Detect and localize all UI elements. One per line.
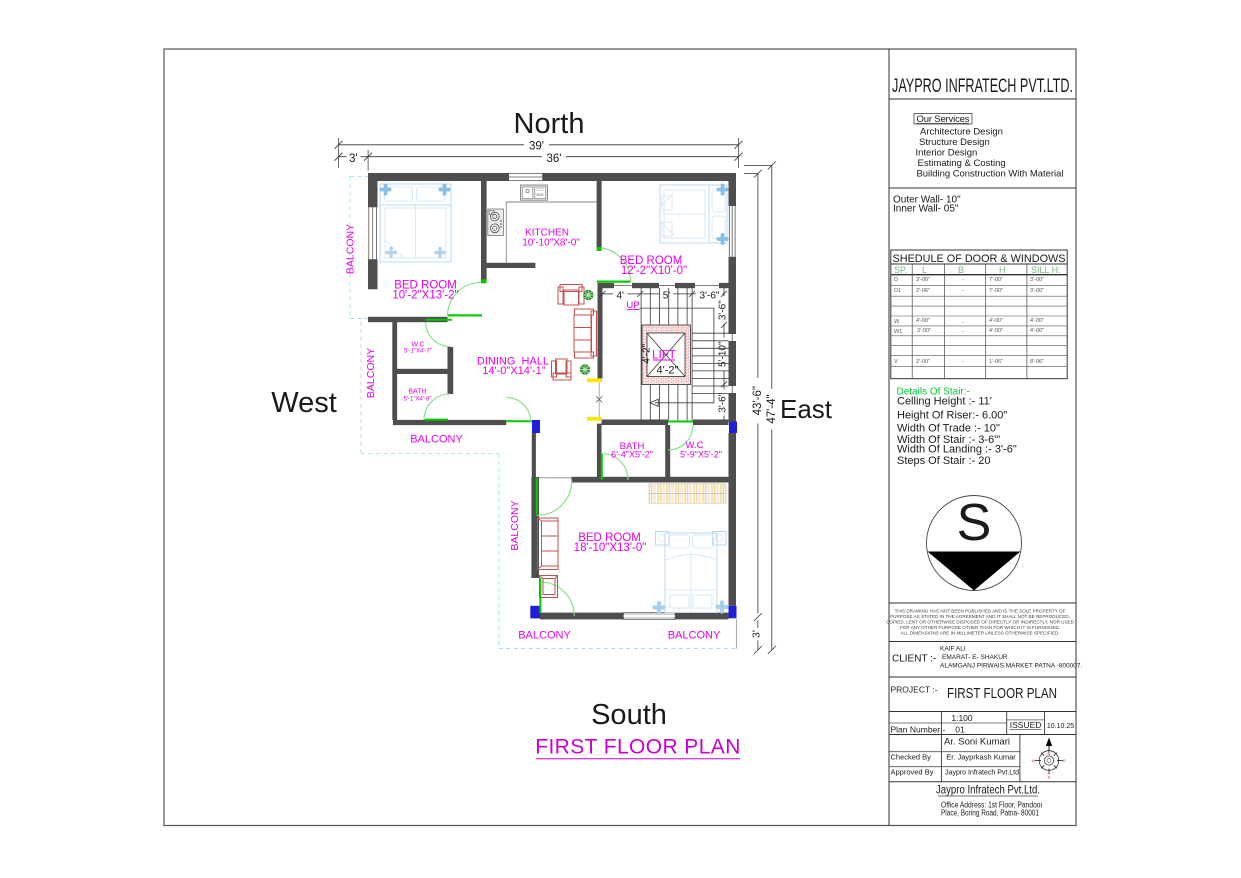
svg-text:5'-9"X5'-2": 5'-9"X5'-2" <box>680 450 722 460</box>
svg-text:ALL DIMENSIONS ARE IN MILLIMET: ALL DIMENSIONS ARE IN MILLIMETER UNLESS … <box>900 631 1059 636</box>
svg-text:5'-1"X4'-8": 5'-1"X4'-8" <box>404 397 432 403</box>
svg-text:D: D <box>894 277 898 283</box>
svg-text:E: E <box>1063 758 1066 763</box>
svg-text:H: H <box>999 265 1006 275</box>
svg-text:1'-06": 1'-06" <box>989 359 1003 365</box>
svg-text:BALCONY: BALCONY <box>345 224 357 274</box>
svg-text:BALCONY: BALCONY <box>509 500 521 550</box>
svg-text:BALCONY: BALCONY <box>518 630 571 642</box>
svg-text:-: - <box>962 288 964 294</box>
svg-text:47'-4": 47'-4" <box>766 394 778 423</box>
svg-text:Approved By: Approved By <box>891 768 934 777</box>
svg-text:W: W <box>1032 758 1036 763</box>
svg-text:5': 5' <box>663 290 671 301</box>
svg-text:North: North <box>514 108 585 140</box>
svg-text:3'-6": 3'-6" <box>718 392 729 412</box>
svg-text:COPIED, LENT OR OTHERWISE DISP: COPIED, LENT OR OTHERWISE DISPOSED OF DI… <box>886 620 1075 625</box>
svg-text:D1: D1 <box>894 288 901 294</box>
svg-text:Plan Number:-: Plan Number:- <box>891 725 946 735</box>
svg-text:BATH: BATH <box>408 389 426 396</box>
svg-text:4'-00": 4'-00" <box>1030 318 1044 324</box>
svg-text:10.10.25: 10.10.25 <box>1047 723 1074 730</box>
svg-text:3': 3' <box>349 153 358 165</box>
svg-text:BALCONY: BALCONY <box>410 434 463 446</box>
svg-text:14'-0"X14'-1": 14'-0"X14'-1" <box>482 365 545 377</box>
svg-text:East: East <box>780 394 833 424</box>
svg-text:12'-2"X10'-0": 12'-2"X10'-0" <box>621 265 687 277</box>
svg-text:West: West <box>271 387 337 419</box>
svg-text:43'-6": 43'-6" <box>752 386 764 415</box>
svg-text:EMARAT- E- SHAKUR: EMARAT- E- SHAKUR <box>942 654 1008 661</box>
svg-text:S: S <box>957 494 992 552</box>
svg-text:PURPOSE AS STATED IN THE AGREE: PURPOSE AS STATED IN THE AGREEMENT AND I… <box>890 614 1070 619</box>
svg-text:FIRST FLOOR PLAN: FIRST FLOOR PLAN <box>947 686 1057 702</box>
svg-text:Er. Jayprkash Kumar: Er. Jayprkash Kumar <box>946 753 1016 762</box>
svg-text:4'-00": 4'-00" <box>916 318 930 324</box>
svg-text:36': 36' <box>547 153 562 165</box>
svg-text:Architecture Design: Architecture Design <box>920 127 1003 138</box>
svg-text:BALCONY: BALCONY <box>365 348 377 398</box>
svg-text:JAYPRO INFRATECH PVT.LTD.: JAYPRO INFRATECH PVT.LTD. <box>892 76 1073 97</box>
svg-text:Place, Boring Road, Patna- 800: Place, Boring Road, Patna- 80001 <box>941 809 1039 818</box>
svg-text:7'-00": 7'-00" <box>989 288 1003 294</box>
svg-text:Structure Design: Structure Design <box>919 137 990 148</box>
svg-text:SP.: SP. <box>894 265 907 275</box>
svg-text:4'-00": 4'-00" <box>989 328 1003 334</box>
svg-text:18'-10"X13'-0": 18'-10"X13'-0" <box>574 542 647 554</box>
svg-text:Inner Wall- 05": Inner Wall- 05" <box>893 204 959 215</box>
svg-text:-: - <box>962 329 964 335</box>
svg-text:Interior Design: Interior Design <box>916 148 978 159</box>
svg-text:THIS DRAWING HAS NOT BEEN PUBL: THIS DRAWING HAS NOT BEEN PUBLISHED AND … <box>895 609 1066 614</box>
svg-text:L: L <box>922 265 927 275</box>
svg-text:Width Of Landing :- 3'-6": Width Of Landing :- 3'-6" <box>897 444 1017 456</box>
svg-text:4': 4' <box>616 290 624 301</box>
svg-text:Ar. Soni Kumari: Ar. Soni Kumari <box>944 737 1010 748</box>
svg-text:Checked By: Checked By <box>891 753 932 762</box>
svg-text:3'-6": 3'-6" <box>718 300 729 320</box>
svg-text:ISSUED: ISSUED <box>1010 720 1042 730</box>
svg-text:2'-00": 2'-00" <box>916 359 930 365</box>
svg-text:4'-00": 4'-00" <box>1030 328 1044 334</box>
svg-text:Building Construction With Mat: Building Construction With Material <box>917 169 1064 180</box>
svg-text:7'-00": 7'-00" <box>989 277 1003 283</box>
svg-text:PROJECT :-: PROJECT :- <box>891 685 938 695</box>
svg-text:5'-10": 5'-10" <box>718 341 729 367</box>
svg-text:4'-2": 4'-2" <box>642 343 653 363</box>
svg-text:Estimating & Costing: Estimating & Costing <box>918 158 1006 169</box>
svg-text:1:100: 1:100 <box>951 713 973 723</box>
svg-text:-: - <box>962 320 964 326</box>
svg-text:SILL H.: SILL H. <box>1031 265 1061 275</box>
svg-text:5'-1"X4'-7": 5'-1"X4'-7" <box>404 349 432 355</box>
svg-text:FIRST FLOOR PLAN: FIRST FLOOR PLAN <box>535 736 741 759</box>
svg-text:B: B <box>958 265 964 275</box>
svg-text:2'-06": 2'-06" <box>916 288 930 294</box>
svg-text:SHEDULE OF DOOR & WINDOWS: SHEDULE OF DOOR & WINDOWS <box>893 253 1066 265</box>
svg-text:S: S <box>1048 775 1051 780</box>
svg-text:Jaypro Infratech Pvt.Ltd.: Jaypro Infratech Pvt.Ltd. <box>936 783 1040 797</box>
svg-text:Height Of Riser:- 6.00": Height Of Riser:- 6.00" <box>897 410 1007 422</box>
svg-text:-: - <box>962 277 964 283</box>
svg-text:Width Of Trade :- 10": Width Of Trade :- 10" <box>897 423 1000 435</box>
svg-text:SINK: SINK <box>536 193 544 197</box>
svg-text:4'-2": 4'-2" <box>657 365 679 377</box>
svg-text:10'-10"X8'-0": 10'-10"X8'-0" <box>522 238 580 249</box>
svg-text:3'-00": 3'-00" <box>1030 288 1044 294</box>
svg-text:W.C: W.C <box>411 342 424 349</box>
svg-text:ALAMGANJ PIRWAIS MARKET PATNA: ALAMGANJ PIRWAIS MARKET PATNA -800007. <box>940 663 1083 670</box>
svg-text:3'-00": 3'-00" <box>917 328 931 334</box>
svg-text:3'-00": 3'-00" <box>916 277 930 283</box>
svg-text:FOR ANY OTHER PURPOSE OTHER TH: FOR ANY OTHER PURPOSE OTHER THAN FOR WHI… <box>900 625 1060 630</box>
svg-text:8'-06": 8'-06" <box>1030 359 1044 365</box>
svg-text:3': 3' <box>750 630 762 638</box>
svg-text:3'-00": 3'-00" <box>1030 277 1044 283</box>
svg-text:Steps Of Stair :- 20: Steps Of Stair :- 20 <box>897 455 991 467</box>
svg-text:South: South <box>591 699 667 731</box>
svg-text:N: N <box>1048 751 1051 756</box>
svg-text:10'-2"X13'-2": 10'-2"X13'-2" <box>392 290 458 302</box>
svg-text:Celling Height :- 11': Celling Height :- 11' <box>897 396 992 408</box>
svg-text:V: V <box>894 359 898 365</box>
svg-text:3'-6": 3'-6" <box>700 290 720 301</box>
svg-text:4'-00": 4'-00" <box>989 318 1003 324</box>
svg-text:CLIENT :-: CLIENT :- <box>892 654 936 665</box>
svg-text:Jaypro Infratech Pvt.Ltd.: Jaypro Infratech Pvt.Ltd. <box>945 770 1021 777</box>
svg-text:-: - <box>962 359 964 365</box>
svg-text:01: 01 <box>955 725 965 735</box>
svg-text:W1: W1 <box>894 329 902 335</box>
svg-text:BALCONY: BALCONY <box>668 630 721 642</box>
svg-text:W: W <box>894 319 900 325</box>
svg-text:6'-4"X5'-2": 6'-4"X5'-2" <box>611 450 653 460</box>
svg-text:39': 39' <box>529 140 544 152</box>
svg-text:KAIF ALI: KAIF ALI <box>940 646 966 653</box>
